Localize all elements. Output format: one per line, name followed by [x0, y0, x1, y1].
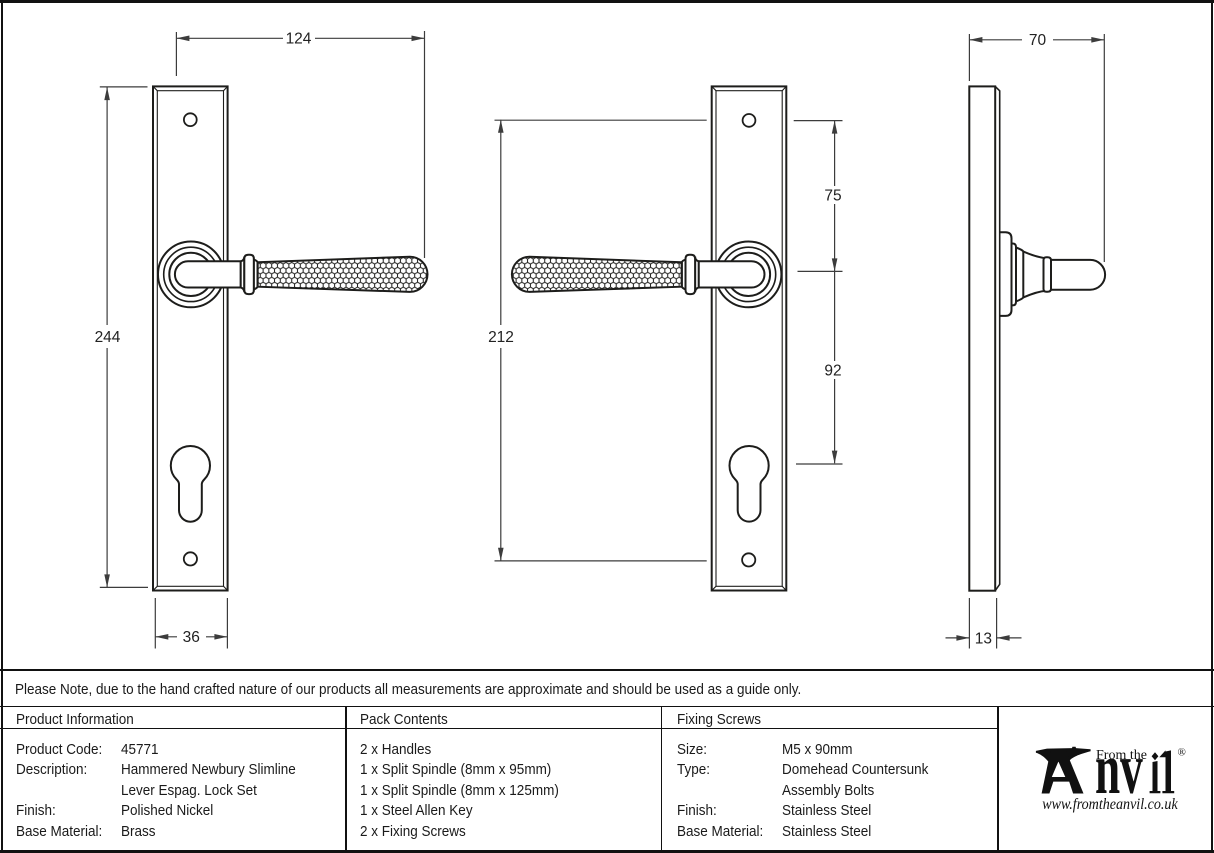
svg-text:212: 212: [488, 329, 514, 346]
svg-text:75: 75: [824, 187, 841, 204]
svg-text:70: 70: [1029, 32, 1047, 49]
svg-text:13: 13: [975, 630, 992, 647]
svg-text:36: 36: [183, 629, 200, 646]
svg-text:92: 92: [824, 362, 841, 379]
svg-text:www.fromtheanvil.co.uk: www.fromtheanvil.co.uk: [1042, 796, 1179, 813]
svg-text:244: 244: [95, 329, 121, 346]
svg-text:124: 124: [286, 31, 312, 48]
svg-text:®: ®: [1178, 747, 1186, 759]
